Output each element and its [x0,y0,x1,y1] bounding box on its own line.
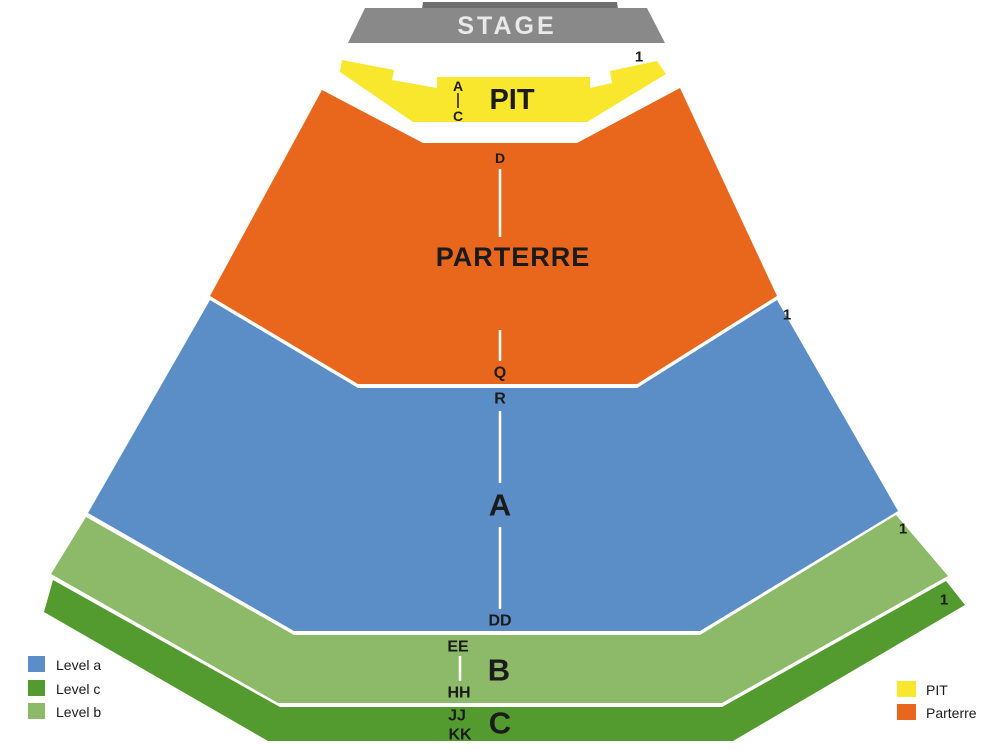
legend-swatch-level-a [28,656,45,672]
row-label-r: R [494,391,506,408]
row-label-kk: KK [448,727,472,744]
legend-label-pit: PIT [926,682,948,698]
legend-swatch-pit [897,681,916,697]
legend-label-parterre: Parterre [926,705,977,721]
legend-swatch-parterre [897,704,916,720]
legend-floor: PIT Parterre [897,681,977,721]
level-c-section-label: C [489,706,511,741]
row-label-pit-a: A [453,78,463,94]
level-a-section-label: A [489,488,511,523]
legend-label-level-b: Level b [56,704,101,720]
legend-swatch-level-c [28,680,45,696]
row-one-marker-level-a: 1 [783,307,791,324]
row-label-jj: JJ [448,708,466,725]
legend-label-level-a: Level a [56,657,101,673]
row-label-dd: DD [488,613,511,630]
row-label-ee: EE [447,639,469,656]
stage-label: STAGE [457,12,556,40]
row-label-pit-c: C [453,108,463,124]
seating-chart-page: STAGE A C PIT D PARTERRE Q R A DD EE B H… [0,0,1000,750]
seating-chart-svg: STAGE A C PIT D PARTERRE Q R A DD EE B H… [0,0,1000,750]
legend-levels: Level a Level c Level b [28,656,101,720]
row-one-marker-pit: 1 [635,49,643,66]
parterre-section-label: PARTERRE [436,242,591,272]
stage-back-edge [422,2,618,9]
level-b-section-label: B [488,653,510,688]
legend-label-level-c: Level c [56,681,100,697]
row-one-marker-level-c: 1 [940,592,948,609]
row-label-d: D [495,150,505,166]
row-one-marker-level-b: 1 [899,521,907,538]
pit-section-label: PIT [489,84,534,116]
row-label-q: Q [494,365,506,382]
row-label-hh: HH [447,685,470,702]
section-parterre[interactable] [210,88,777,384]
legend-swatch-level-b [28,703,45,719]
